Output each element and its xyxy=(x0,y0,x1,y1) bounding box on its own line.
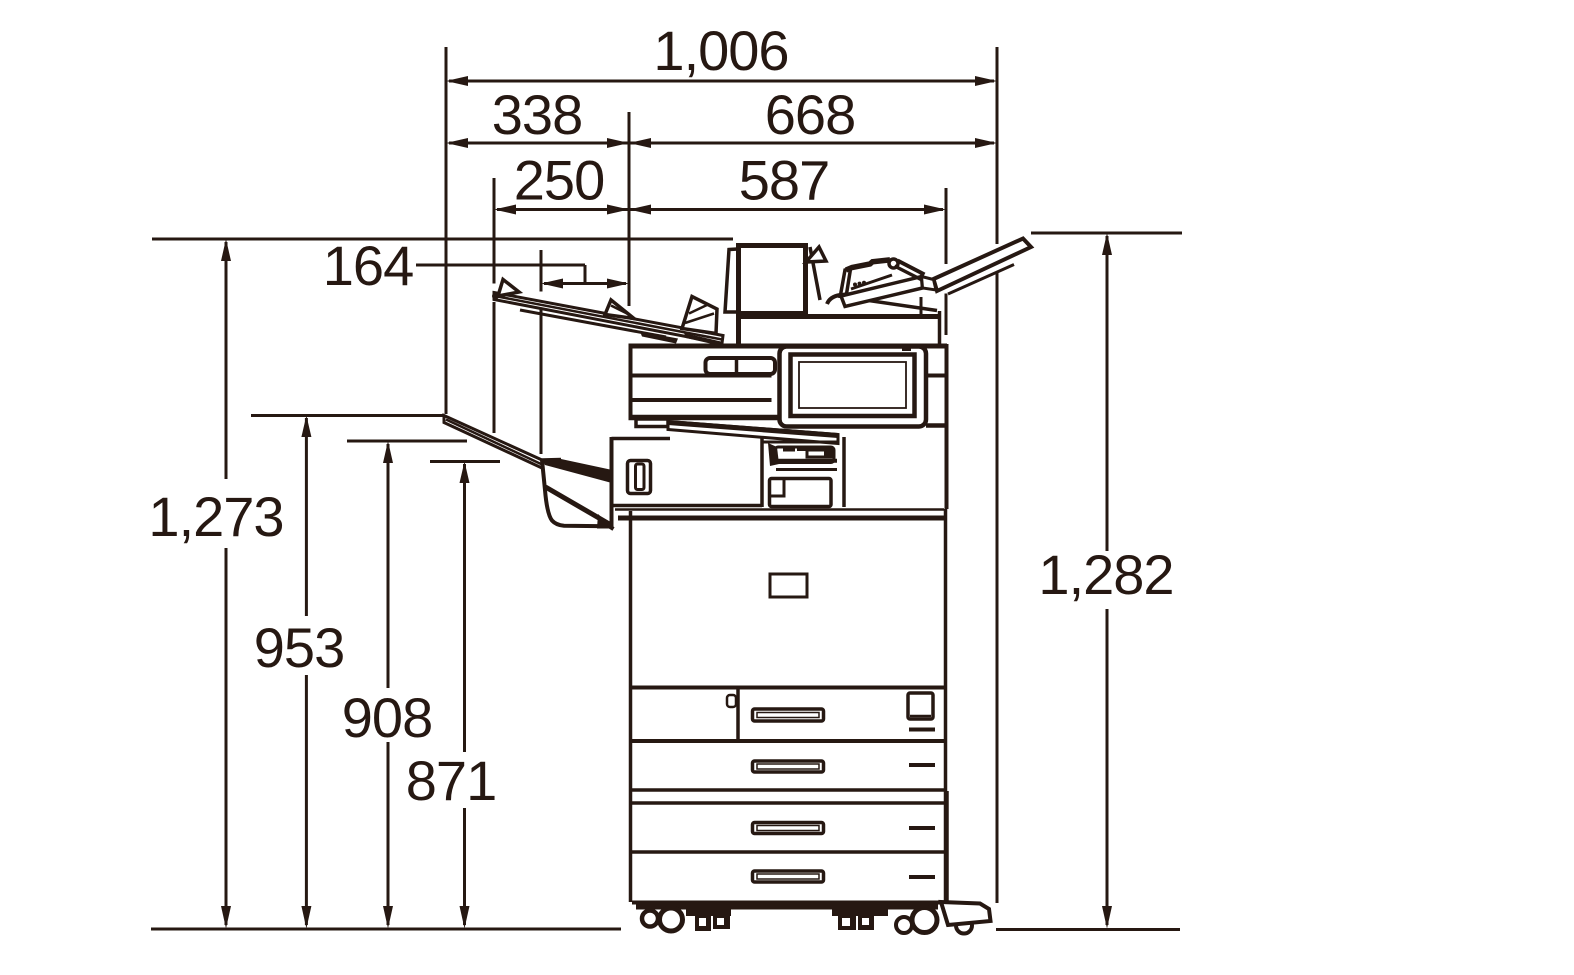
svg-text:1,273: 1,273 xyxy=(148,485,283,548)
svg-text:587: 587 xyxy=(739,149,829,212)
svg-text:250: 250 xyxy=(514,149,604,212)
svg-text:164: 164 xyxy=(323,234,413,297)
svg-text:1,006: 1,006 xyxy=(653,19,788,82)
svg-text:1,282: 1,282 xyxy=(1038,543,1173,606)
svg-text:338: 338 xyxy=(492,83,582,146)
svg-text:908: 908 xyxy=(342,686,432,749)
svg-text:668: 668 xyxy=(765,83,855,146)
svg-text:871: 871 xyxy=(406,749,496,812)
svg-text:953: 953 xyxy=(254,616,344,679)
